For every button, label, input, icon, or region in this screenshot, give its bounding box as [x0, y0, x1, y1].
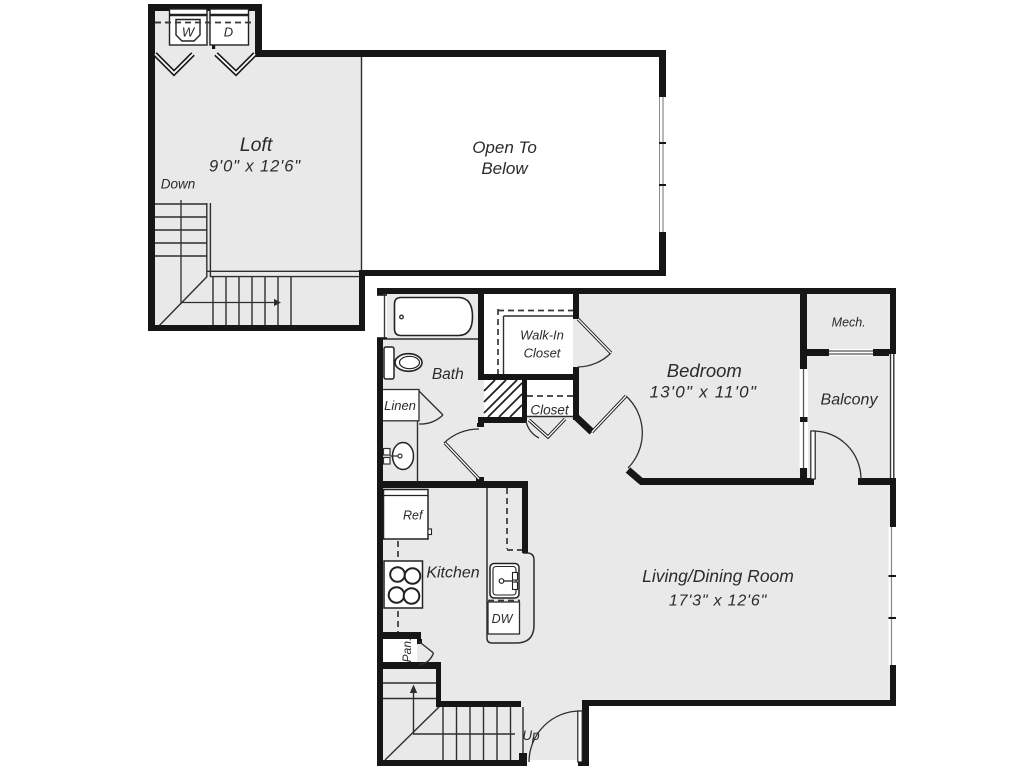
svg-text:Living/Dining Room: Living/Dining Room — [642, 566, 794, 586]
svg-text:Ref: Ref — [403, 509, 424, 523]
svg-text:W: W — [182, 25, 196, 40]
svg-text:Mech.: Mech. — [832, 316, 866, 330]
svg-text:9'0" x 12'6": 9'0" x 12'6" — [209, 158, 301, 176]
svg-text:Balcony: Balcony — [821, 392, 879, 409]
svg-text:Pan.: Pan. — [400, 638, 414, 663]
svg-text:13'0" x 11'0": 13'0" x 11'0" — [650, 383, 758, 402]
svg-text:Bedroom: Bedroom — [667, 360, 742, 381]
svg-text:17'3" x 12'6": 17'3" x 12'6" — [669, 593, 768, 610]
svg-text:Walk-In: Walk-In — [520, 328, 564, 343]
svg-text:Up: Up — [522, 728, 540, 743]
svg-text:Kitchen: Kitchen — [426, 565, 479, 582]
svg-text:Bath: Bath — [432, 366, 464, 383]
svg-text:Loft: Loft — [240, 134, 274, 156]
svg-text:Closet: Closet — [530, 403, 570, 418]
svg-text:Open To: Open To — [472, 138, 537, 157]
svg-text:D: D — [224, 25, 233, 40]
svg-text:DW: DW — [492, 612, 514, 626]
svg-text:Below: Below — [481, 159, 529, 178]
svg-text:Down: Down — [161, 177, 196, 192]
svg-text:Linen: Linen — [384, 398, 416, 413]
svg-text:Closet: Closet — [524, 346, 562, 361]
